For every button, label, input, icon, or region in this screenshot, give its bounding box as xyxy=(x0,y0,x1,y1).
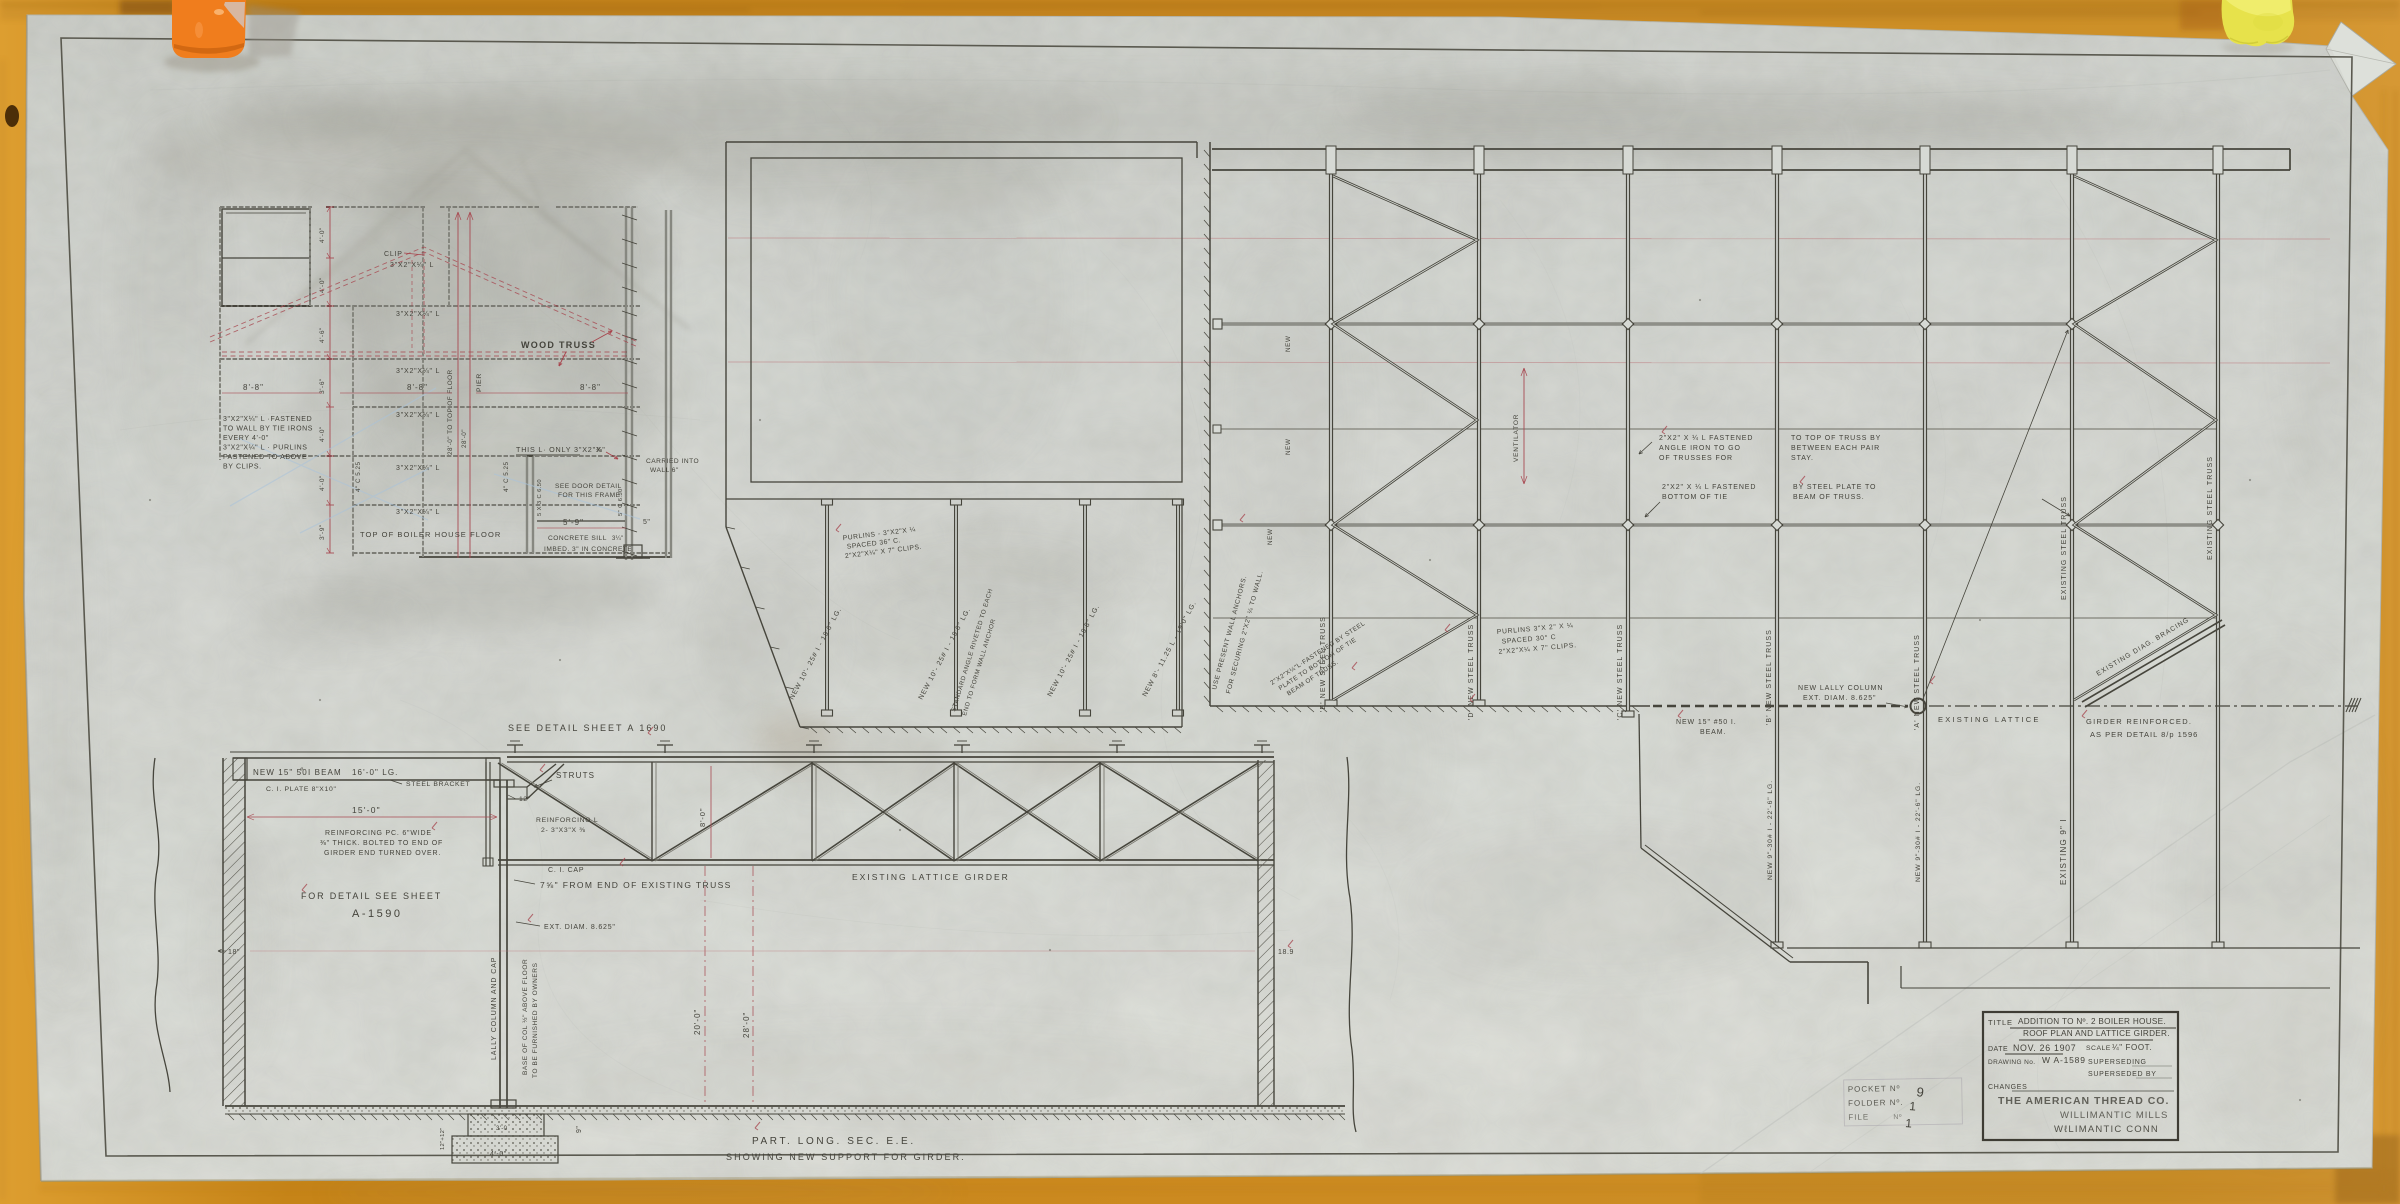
svg-text:EXISTING STEEL TRUSS: EXISTING STEEL TRUSS xyxy=(2207,456,2214,560)
svg-text:2- 3"X3"X ⅜: 2- 3"X3"X ⅜ xyxy=(541,827,586,834)
svg-text:A-1590: A-1590 xyxy=(352,908,402,920)
svg-text:STEEL BRACKET: STEEL BRACKET xyxy=(406,781,470,788)
svg-text:18": 18" xyxy=(228,949,240,956)
svg-text:SCALE: SCALE xyxy=(2086,1045,2111,1052)
svg-text:FASTENED TO ABOVE: FASTENED TO ABOVE xyxy=(223,454,307,461)
svg-text:SUPERSEDED BY: SUPERSEDED BY xyxy=(2088,1071,2157,1078)
svg-text:NEW: NEW xyxy=(1285,439,1292,456)
svg-text:TO BE FURNISHED BY OWNERS: TO BE FURNISHED BY OWNERS xyxy=(532,962,539,1078)
svg-text:TO WALL BY TIE IRONS: TO WALL BY TIE IRONS xyxy=(223,426,313,433)
svg-text:7⅝" FROM END OF EXISTING TRUSS: 7⅝" FROM END OF EXISTING TRUSS xyxy=(540,880,732,890)
svg-text:15'-0": 15'-0" xyxy=(352,805,381,815)
svg-text:C. I. PLATE 8"X10": C. I. PLATE 8"X10" xyxy=(266,786,337,793)
svg-text:'B' NEW STEEL TRUSS: 'B' NEW STEEL TRUSS xyxy=(1766,629,1773,725)
svg-text:DATE: DATE xyxy=(1988,1046,2008,1053)
svg-text:BOTTOM OF TIE: BOTTOM OF TIE xyxy=(1662,494,1728,501)
svg-text:IMBED. 3" IN CONCRETE: IMBED. 3" IN CONCRETE xyxy=(544,546,632,553)
svg-text:CHANGES: CHANGES xyxy=(1988,1084,2028,1091)
svg-text:EXISTING 9" I: EXISTING 9" I xyxy=(2059,818,2068,885)
svg-text:CONCRETE SILL: CONCRETE SILL xyxy=(548,535,607,542)
svg-text:BASE OF COL ½" ABOVE FLOOR: BASE OF COL ½" ABOVE FLOOR xyxy=(521,959,529,1075)
svg-text:NEW LALLY COLUMN: NEW LALLY COLUMN xyxy=(1798,685,1883,692)
svg-text:GIRDER END TURNED OVER.: GIRDER END TURNED OVER. xyxy=(324,850,441,857)
svg-text:NEW 9"-30# I - 22'-6" LG.: NEW 9"-30# I - 22'-6" LG. xyxy=(1915,782,1922,882)
svg-text:3"X2"X¼" L · PURLINS: 3"X2"X¼" L · PURLINS xyxy=(223,445,308,452)
svg-text:C. I. CAP: C. I. CAP xyxy=(548,867,584,874)
svg-text:SUPERSEDING: SUPERSEDING xyxy=(2088,1059,2147,1066)
svg-text:'A' NEW STEEL TRUSS: 'A' NEW STEEL TRUSS xyxy=(1914,634,1921,730)
svg-text:4" C 5.25: 4" C 5.25 xyxy=(503,461,510,492)
svg-text:FOLDER Nº.: FOLDER Nº. xyxy=(1848,1098,1904,1108)
svg-text:CLIP: CLIP xyxy=(384,251,403,258)
svg-text:CARRIED INTO: CARRIED INTO xyxy=(646,458,699,465)
svg-text:THIS L· ONLY 3"X2"X: THIS L· ONLY 3"X2"X xyxy=(516,445,602,454)
svg-text:4" C 5.25: 4" C 5.25 xyxy=(355,461,362,492)
svg-text:'C' NEW STEEL TRUSS: 'C' NEW STEEL TRUSS xyxy=(1617,624,1624,720)
svg-text:8'-8": 8'-8" xyxy=(580,383,601,392)
svg-text:NOV. 26 1907: NOV. 26 1907 xyxy=(2013,1043,2076,1053)
svg-text:3"X2"X¼" L: 3"X2"X¼" L xyxy=(396,509,440,516)
svg-text:REINFORCING PC. 6"WIDE: REINFORCING PC. 6"WIDE xyxy=(325,830,432,837)
svg-text:2"X2" X ¼ L FASTENED: 2"X2" X ¼ L FASTENED xyxy=(1662,484,1756,491)
svg-text:GIRDER REINFORCED.: GIRDER REINFORCED. xyxy=(2086,717,2192,726)
svg-text:BEAM OF TRUSS.: BEAM OF TRUSS. xyxy=(1793,494,1865,501)
svg-text:3'-9": 3'-9" xyxy=(319,524,326,540)
svg-text:EXISTING LATTICE GIRDER: EXISTING LATTICE GIRDER xyxy=(852,872,1010,882)
svg-text:3"X2"X¼" L: 3"X2"X¼" L xyxy=(390,262,434,269)
svg-text:3'-0: 3'-0 xyxy=(496,1126,508,1132)
svg-text:NEW 9"-30# I - 22'-6" LG.: NEW 9"-30# I - 22'-6" LG. xyxy=(1767,780,1774,880)
svg-text:EXT. DIAM. 8.625": EXT. DIAM. 8.625" xyxy=(1803,695,1876,702)
svg-text:3"X2"X¼" L: 3"X2"X¼" L xyxy=(396,412,440,419)
svg-text:4'-0": 4'-0" xyxy=(319,426,326,442)
svg-text:OF TRUSSES FOR: OF TRUSSES FOR xyxy=(1659,455,1733,462)
svg-text:BY CLIPS.: BY CLIPS. xyxy=(223,464,262,471)
svg-text:FILE: FILE xyxy=(1848,1113,1869,1122)
svg-text:16'-0" LG.: 16'-0" LG. xyxy=(352,768,399,777)
svg-text:4'-6": 4'-6" xyxy=(319,327,326,343)
svg-text:ANGLE IRON TO GO: ANGLE IRON TO GO xyxy=(1659,445,1741,452)
svg-text:TITLE: TITLE xyxy=(1988,1018,2013,1027)
svg-text:'D' NEW STEEL TRUSS: 'D' NEW STEEL TRUSS xyxy=(1468,624,1475,720)
svg-text:NEW: NEW xyxy=(1267,529,1274,546)
svg-text:3"X2"X¼" L: 3"X2"X¼" L xyxy=(396,465,440,472)
svg-text:⅜" THICK. BOLTED TO END OF: ⅜" THICK. BOLTED TO END OF xyxy=(320,840,443,847)
svg-text:TO TOP OF TRUSS BY: TO TOP OF TRUSS BY xyxy=(1791,435,1881,442)
svg-text:4'-0": 4'-0" xyxy=(319,475,326,491)
svg-text:4'-0": 4'-0" xyxy=(319,227,326,243)
svg-text:12": 12" xyxy=(519,796,531,803)
svg-text:PIER: PIER xyxy=(476,373,483,392)
svg-text:ROOF PLAN AND LATTICE GIRDER: ROOF PLAN AND LATTICE GIRDER. xyxy=(2023,1029,2170,1038)
svg-text:W A-1589: W A-1589 xyxy=(2042,1055,2086,1065)
svg-text:AS PER DETAIL 8/p 1596: AS PER DETAIL 8/p 1596 xyxy=(2090,730,2198,739)
svg-text:LALLY COLUMN AND CAP: LALLY COLUMN AND CAP xyxy=(491,957,498,1060)
svg-text:SEE DETAIL SHEET A 1690: SEE DETAIL SHEET A 1690 xyxy=(508,723,667,733)
svg-text:3"X2"X¼" L: 3"X2"X¼" L xyxy=(396,311,440,318)
svg-text:EVERY 4'-0": EVERY 4'-0" xyxy=(223,435,269,442)
svg-text:4'-0": 4'-0" xyxy=(490,1151,507,1158)
svg-text:BETWEEN EACH PAIR: BETWEEN EACH PAIR xyxy=(1791,445,1880,452)
svg-text:5" C 6.50: 5" C 6.50 xyxy=(618,488,624,516)
svg-text:⅜": ⅜" xyxy=(596,445,605,454)
svg-text:18.9: 18.9 xyxy=(1278,949,1294,956)
svg-text:8'-8": 8'-8" xyxy=(243,383,264,392)
svg-text:SEE DOOR DETAIL: SEE DOOR DETAIL xyxy=(555,483,622,490)
svg-text:VENTILATOR: VENTILATOR xyxy=(1513,414,1520,462)
svg-text:5 X 3 C 6.50: 5 X 3 C 6.50 xyxy=(537,479,543,516)
svg-text:ADDITION TO Nº. 2 BOILER HOUS: ADDITION TO Nº. 2 BOILER HOUSE. xyxy=(2018,1017,2166,1026)
svg-text:EXISTING LATTICE: EXISTING LATTICE xyxy=(1938,715,2041,724)
svg-text:28'-0": 28'-0" xyxy=(461,429,468,448)
svg-text:3¼": 3¼" xyxy=(612,536,623,542)
svg-text:WℓLIMANTIC CONN: WℓLIMANTIC CONN xyxy=(2054,1124,2159,1135)
svg-text:NEW: NEW xyxy=(1285,336,1292,353)
svg-text:5": 5" xyxy=(643,519,650,526)
svg-text:FOR THIS FRAME: FOR THIS FRAME xyxy=(558,492,621,499)
svg-text:TOP OF BOILER HOUSE FLOOR: TOP OF BOILER HOUSE FLOOR xyxy=(360,530,501,539)
svg-text:12"+12": 12"+12" xyxy=(440,1128,446,1151)
svg-text:WOOD TRUSS: WOOD TRUSS xyxy=(521,340,596,350)
svg-text:BY STEEL PLATE TO: BY STEEL PLATE TO xyxy=(1793,484,1876,491)
svg-text:POCKET Nº: POCKET Nº xyxy=(1848,1084,1901,1094)
svg-text:28'-0" TO TOP OF FLOOR: 28'-0" TO TOP OF FLOOR xyxy=(447,369,454,455)
svg-text:8'-0": 8'-0" xyxy=(698,808,707,827)
svg-text:REINFORCING L: REINFORCING L xyxy=(536,817,598,824)
svg-text:3"X2"X¼" L: 3"X2"X¼" L xyxy=(396,368,440,375)
svg-text:3'-6": 3'-6" xyxy=(319,378,326,394)
svg-text:I BEAM: I BEAM xyxy=(308,768,342,777)
svg-text:STAY.: STAY. xyxy=(1791,455,1814,462)
svg-text:BEAM.: BEAM. xyxy=(1700,729,1726,736)
svg-text:5'-9": 5'-9" xyxy=(563,518,584,527)
svg-text:NEW 15" #50 I.: NEW 15" #50 I. xyxy=(1676,719,1737,726)
svg-text:Nº: Nº xyxy=(1893,1114,1902,1121)
svg-text:20'-0": 20'-0" xyxy=(693,1009,702,1035)
svg-text:FOR DETAIL SEE SHEET: FOR DETAIL SEE SHEET xyxy=(301,891,442,901)
svg-text:¼" FOOT.: ¼" FOOT. xyxy=(2112,1043,2152,1052)
svg-text:STRUTS: STRUTS xyxy=(556,771,595,780)
svg-text:28'-0": 28'-0" xyxy=(742,1012,751,1038)
svg-text:3"X2"X¼" L ·FASTENED: 3"X2"X¼" L ·FASTENED xyxy=(223,416,312,423)
svg-text:WALL 6": WALL 6" xyxy=(650,467,679,474)
svg-text:SHOWING NEW SUPPORT FOR GI: SHOWING NEW SUPPORT FOR GIRDER. xyxy=(726,1152,966,1162)
svg-text:EXT. DIAM. 8.625": EXT. DIAM. 8.625" xyxy=(544,924,616,931)
svg-text:PART. LONG. SEC. E.E.: PART. LONG. SEC. E.E. xyxy=(752,1136,916,1147)
svg-text:2"X2" X ¼ L FASTENED: 2"X2" X ¼ L FASTENED xyxy=(1659,435,1753,442)
svg-text:WILLIMANTIC MILLS: WILLIMANTIC MILLS xyxy=(2060,1110,2168,1121)
svg-text:DRAWING No.: DRAWING No. xyxy=(1988,1059,2036,1066)
svg-text:THE AMERICAN THREAD CO.: THE AMERICAN THREAD CO. xyxy=(1998,1095,2169,1107)
svg-text:8'-8": 8'-8" xyxy=(407,383,428,392)
svg-text:9": 9" xyxy=(576,1126,583,1133)
